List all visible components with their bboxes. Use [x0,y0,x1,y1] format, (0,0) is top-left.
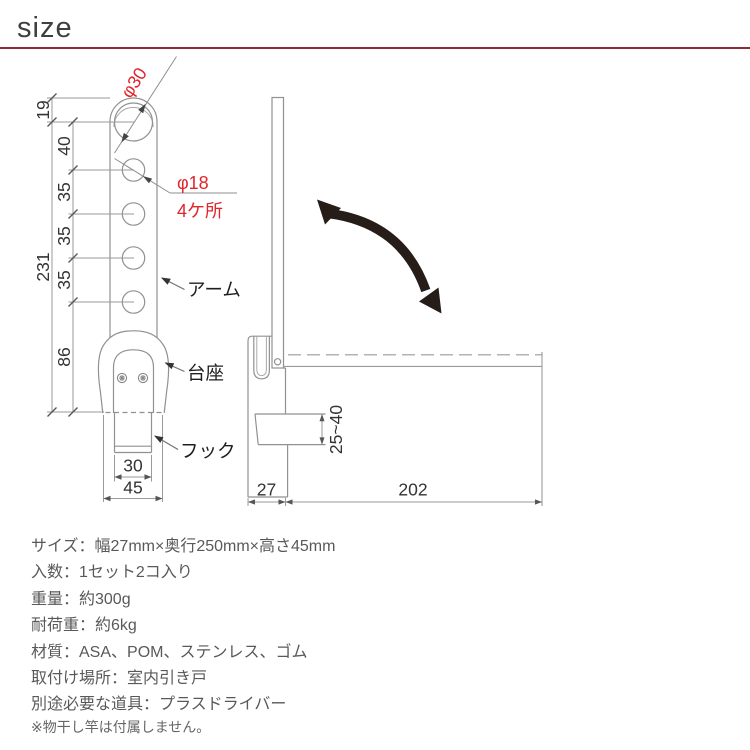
spec-line-load: 耐荷重：約6kg [31,613,335,639]
side-bracket-outline [248,336,326,497]
dim-35b: 35 [54,226,74,245]
dim-27: 27 [257,480,276,500]
screw-left [117,373,126,382]
callout-phi18-count: 4ケ所 [177,201,223,221]
hook-outline [115,413,152,453]
callout-phi30: φ30 [117,64,151,101]
label-arm: アーム [187,279,241,300]
side-arm-bar [272,98,284,369]
dim-40: 40 [54,136,74,156]
dim-231: 231 [33,252,53,281]
clamp-dimension: 25~40 [320,405,347,454]
label-base: 台座 [187,363,224,384]
spec-line-quantity: 入数：1セット2コ入り [31,560,335,586]
spec-line-tools: 別途必要な道具：プラスドライバー [31,692,335,718]
screw-right [138,373,147,382]
dim-30: 30 [123,456,143,476]
spec-line-material: 材質：ASA、POM、ステンレス、ゴム [31,640,335,666]
dim-86: 86 [54,347,74,366]
side-bottom-dimensions: 27 202 [248,480,542,507]
callout-phi18: φ18 [177,173,209,193]
footnote: ※物干し竿は付属しません。 [31,717,210,737]
dim-202: 202 [398,480,427,500]
dim-35a: 35 [54,182,74,201]
arm-outline [110,98,157,341]
front-view: 19 231 40 35 35 35 86 30 45 [33,57,241,503]
spec-list: サイズ：幅27mm×奥行250mm×高さ45mm 入数：1セット2コ入り 重量：… [31,534,335,719]
label-hook: フック [180,441,236,462]
size-diagram: 19 231 40 35 35 35 86 30 45 [0,0,750,525]
spec-line-location: 取付け場所：室内引き戸 [31,666,335,692]
hinge-pin [275,359,281,365]
dim-19: 19 [33,100,53,119]
dim-35c: 35 [54,270,74,289]
side-view: 25~40 27 202 [248,98,542,507]
dim-45: 45 [123,478,142,498]
dim-range: 25~40 [326,405,346,454]
spec-line-weight: 重量：約300g [31,587,335,613]
rotation-arrow [317,200,442,314]
spec-line-size: サイズ：幅27mm×奥行250mm×高さ45mm [31,534,335,560]
